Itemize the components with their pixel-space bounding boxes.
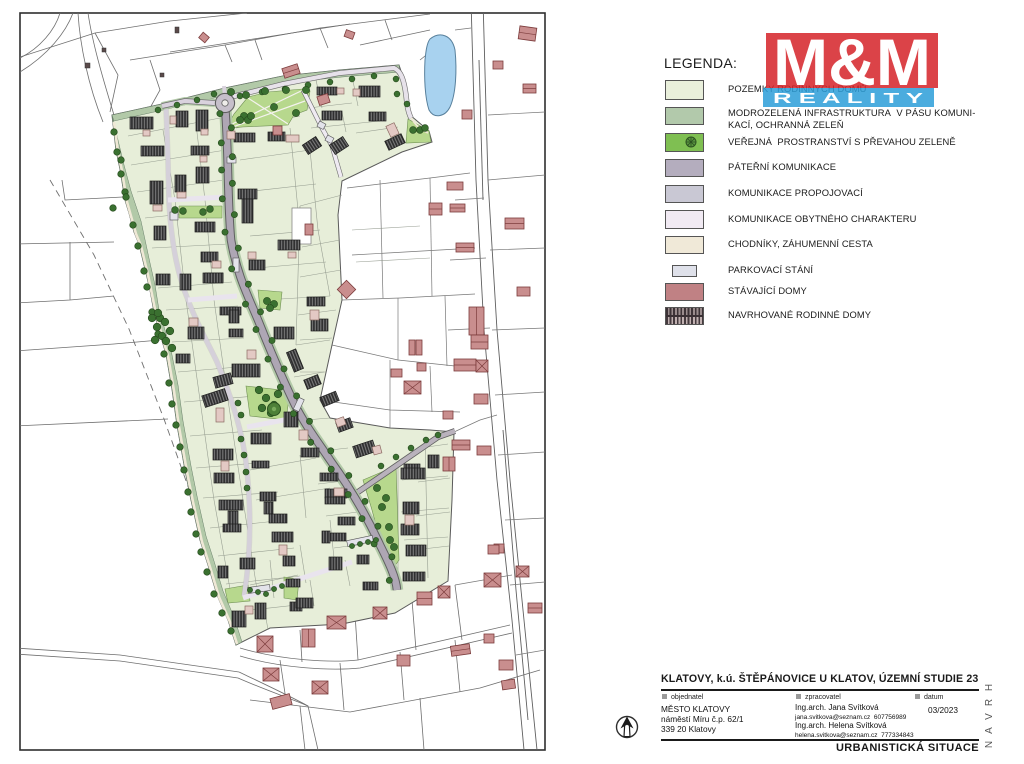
svg-text:R E A L I T Y: R E A L I T Y — [773, 91, 924, 107]
svg-text:M&M: M&M — [773, 33, 931, 88]
